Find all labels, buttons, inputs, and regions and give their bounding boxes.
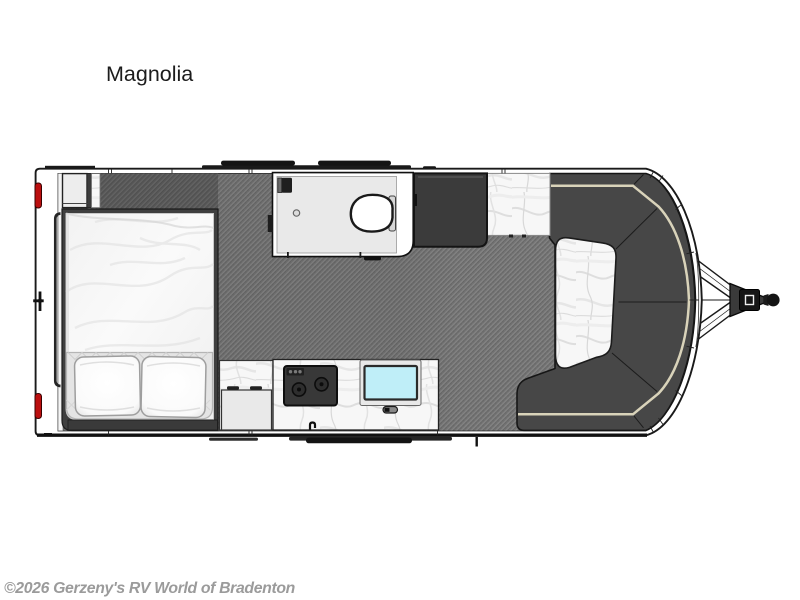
svg-text:Magnolia: Magnolia xyxy=(106,62,193,86)
svg-text:©2026 Gerzeny's RV World of Br: ©2026 Gerzeny's RV World of Bradenton xyxy=(4,580,295,597)
